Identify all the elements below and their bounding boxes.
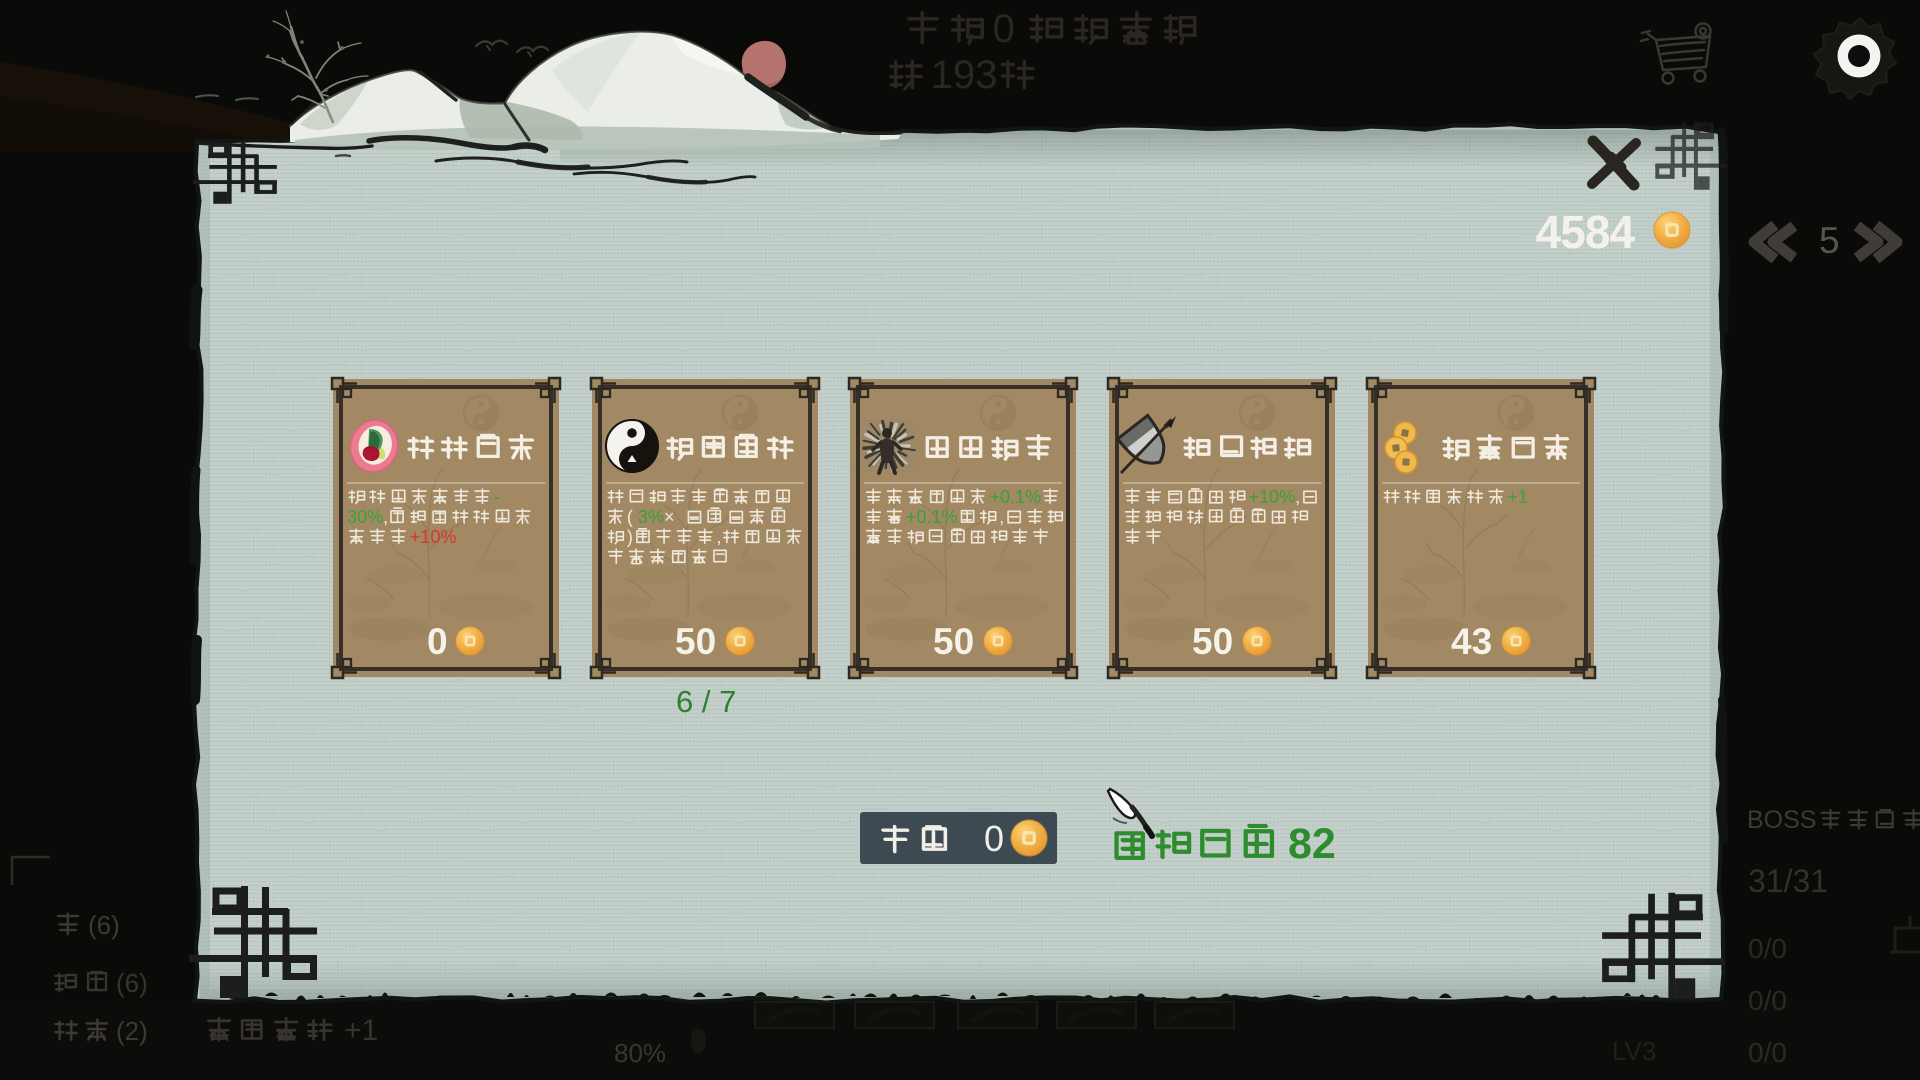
svg-text:+1: +1	[344, 1014, 378, 1047]
svg-text:6 / 7: 6 / 7	[676, 684, 736, 719]
svg-text:+10%: +10%	[1248, 487, 1295, 507]
svg-text:(2): (2)	[116, 1016, 148, 1046]
svg-text:,: ,	[999, 507, 1004, 527]
svg-text:43: 43	[1451, 621, 1492, 662]
svg-text:0: 0	[427, 621, 448, 662]
svg-text:+0.1%: +0.1%	[989, 487, 1041, 507]
svg-text:LV3: LV3	[1612, 1036, 1656, 1066]
svg-text:0: 0	[984, 818, 1004, 859]
svg-text:30%: 30%	[347, 507, 383, 527]
svg-text:BOSS: BOSS	[1747, 806, 1816, 834]
svg-text:+10%: +10%	[410, 527, 457, 547]
svg-text:82: 82	[1288, 820, 1336, 868]
svg-text:,: ,	[717, 527, 722, 547]
svg-text:×: ×	[664, 507, 675, 527]
svg-text:,: ,	[383, 507, 388, 527]
svg-text:-: -	[493, 487, 499, 507]
svg-text:0/0: 0/0	[1748, 1037, 1787, 1068]
svg-text:,: ,	[1295, 487, 1300, 507]
svg-text:50: 50	[675, 621, 716, 662]
svg-text:0: 0	[993, 7, 1015, 51]
svg-text:(6): (6)	[88, 910, 120, 940]
svg-text:0/0: 0/0	[1748, 933, 1787, 964]
svg-text:5: 5	[1819, 220, 1840, 261]
svg-text:193: 193	[931, 53, 998, 97]
svg-text:31/31: 31/31	[1748, 863, 1828, 899]
svg-text:3%: 3%	[638, 507, 664, 527]
svg-text:(6): (6)	[116, 968, 148, 998]
svg-text:50: 50	[933, 621, 974, 662]
svg-text:(: (	[627, 507, 633, 527]
svg-text:50: 50	[1192, 621, 1233, 662]
svg-text:+1: +1	[1507, 487, 1528, 507]
svg-text:0/0: 0/0	[1748, 985, 1787, 1016]
svg-text:80%: 80%	[614, 1038, 666, 1068]
svg-text:4584: 4584	[1536, 206, 1636, 258]
svg-text:+0.1%: +0.1%	[906, 507, 958, 527]
svg-text:): )	[627, 527, 633, 547]
